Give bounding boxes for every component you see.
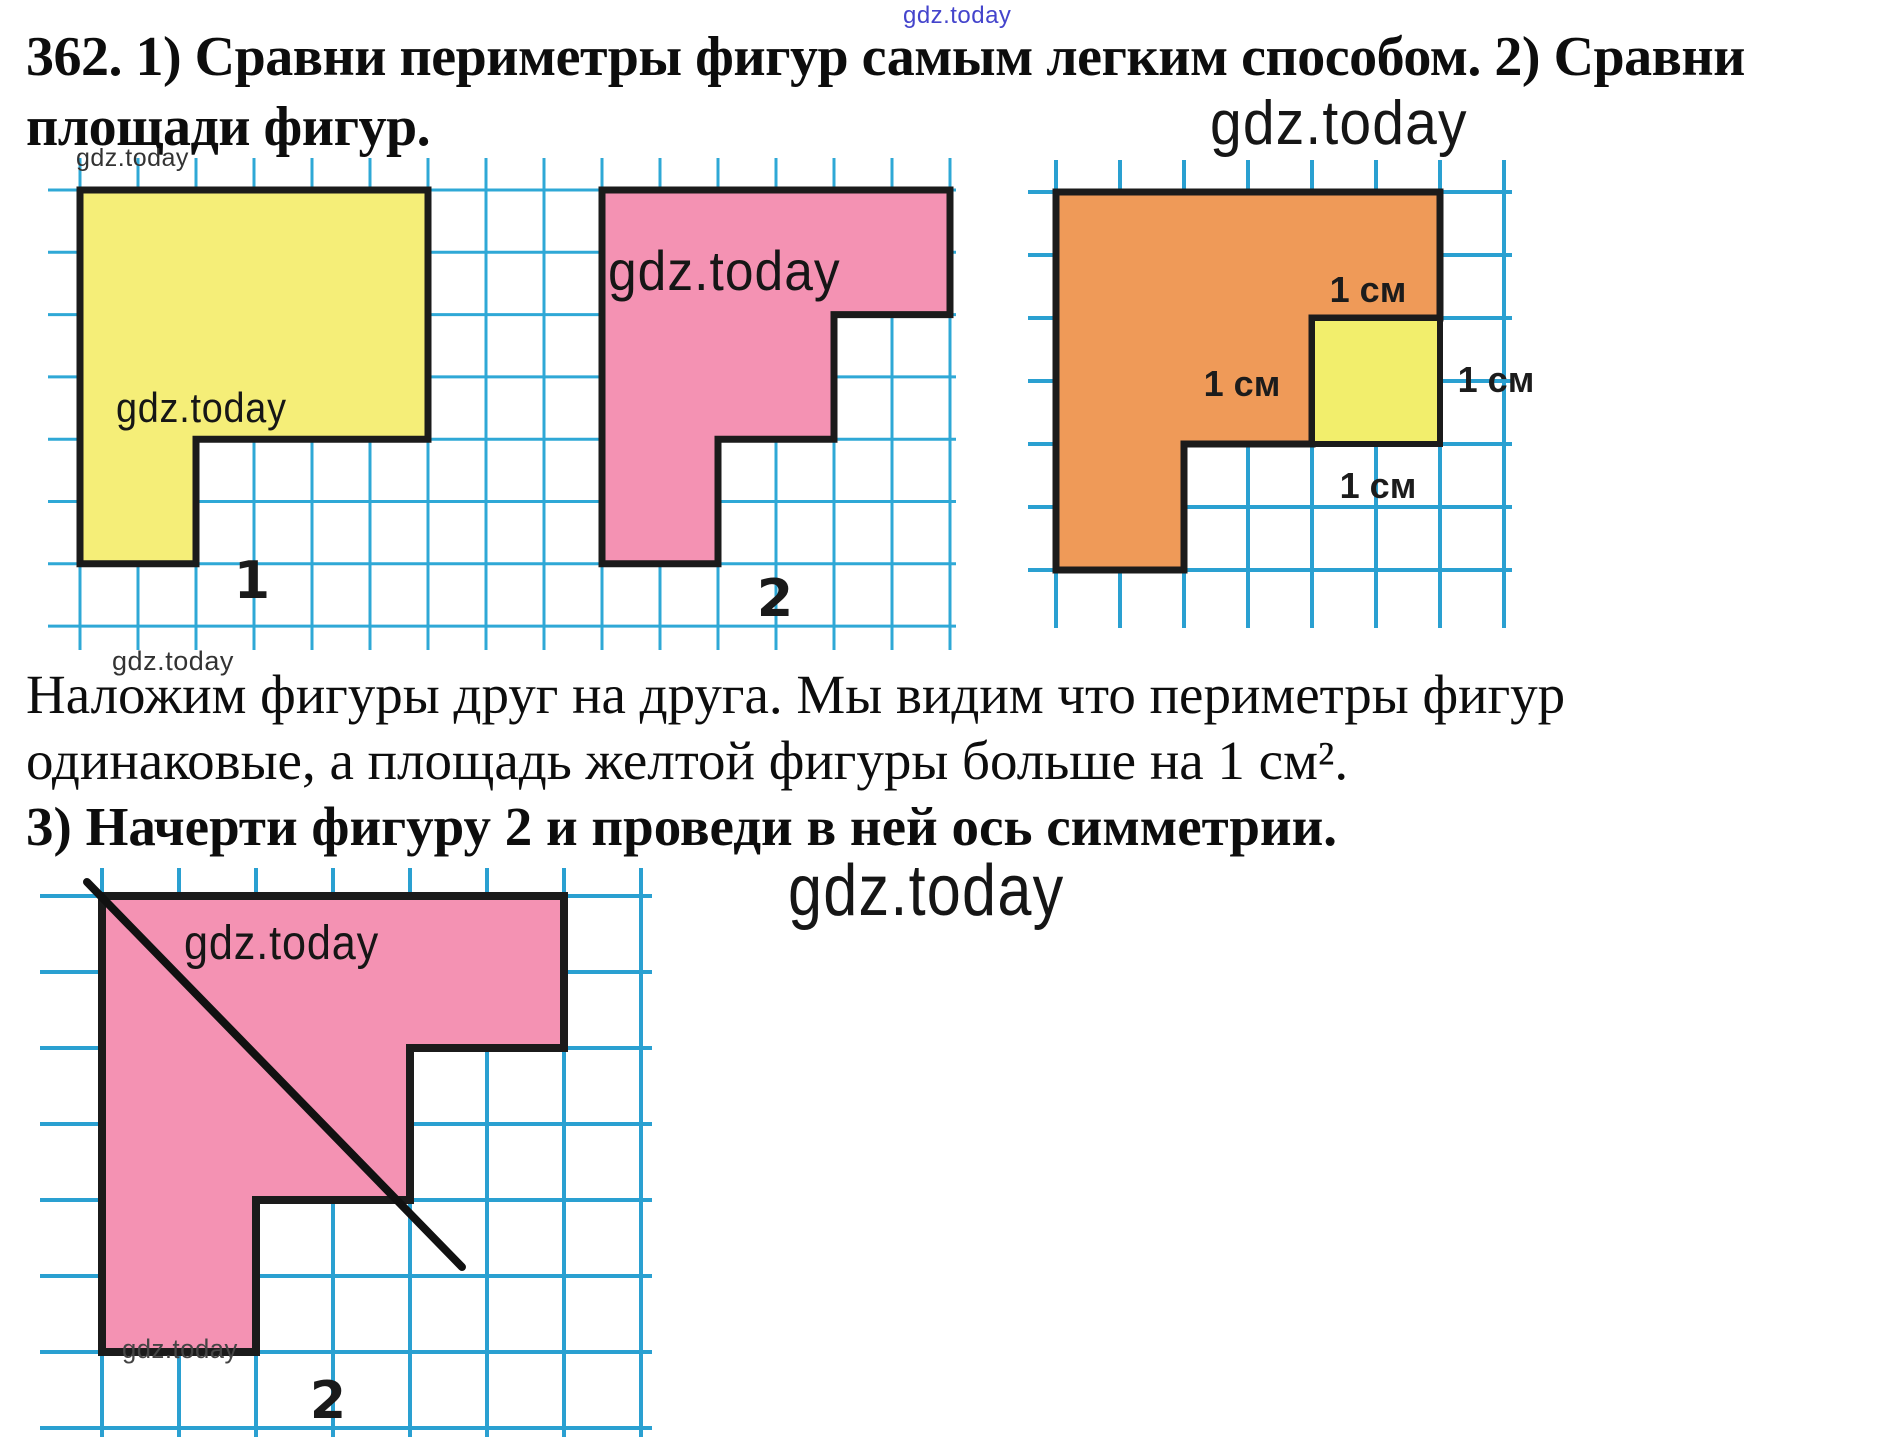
figure2-number: 2 xyxy=(757,569,793,629)
task3-heading: 3) Начерти фигуру 2 и проведи в ней ось … xyxy=(26,794,1565,860)
problem-title-line2: площади фигур. xyxy=(26,92,1745,162)
solution-line1: Наложим фигуры друг на друга. Мы видим ч… xyxy=(26,662,1565,728)
figure3-extra-square xyxy=(1312,318,1440,444)
solution-text: Наложим фигуры друг на друга. Мы видим ч… xyxy=(26,662,1565,860)
figure1-number: 1 xyxy=(234,551,270,611)
dim-label-1cm-3: 1 см xyxy=(1458,359,1535,400)
dim-label-1cm-1: 1 см xyxy=(1330,269,1407,310)
problem-title-line1: 362. 1) Сравни периметры фигур самым лег… xyxy=(26,22,1745,92)
dim-label-1cm-4: 1 см xyxy=(1340,465,1417,506)
figure4-number: 2 xyxy=(310,1371,346,1431)
problem-title: 362. 1) Сравни периметры фигур самым лег… xyxy=(26,22,1745,162)
worksheet-page: 1 см1 см1 см1 см122 362. 1) Сравни перим… xyxy=(0,0,1892,1437)
dim-label-1cm-2: 1 см xyxy=(1204,363,1281,404)
solution-line2: одинаковые, а площадь желтой фигуры боль… xyxy=(26,728,1565,794)
